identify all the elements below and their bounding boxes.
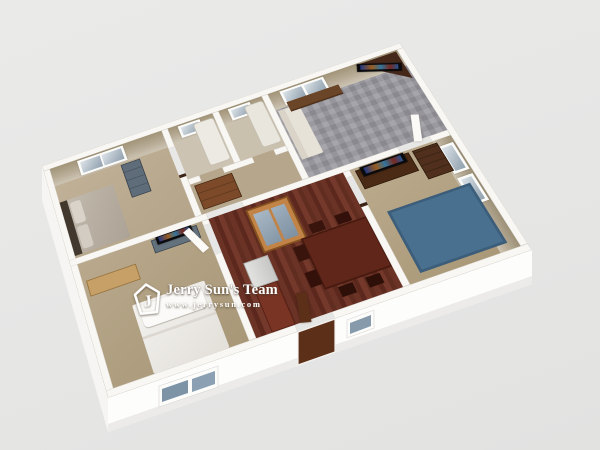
tv-living-screen: [360, 64, 399, 70]
tv-living: [357, 63, 402, 72]
wall-bedroom-bottom-divider-stub: [202, 219, 211, 226]
watermark: J Jerry Sun's Team www.jerrysun.com: [134, 283, 278, 315]
watermark-text: Jerry Sun's Team www.jerrysun.com: [166, 283, 278, 309]
watermark-pentagon-logo: J: [132, 282, 162, 317]
watermark-website: www.jerrysun.com: [166, 299, 278, 309]
floorplan-render: J Jerry Sun's Team www.jerrysun.com: [0, 0, 600, 450]
watermark-team-name: Jerry Sun's Team: [166, 283, 278, 298]
logo-letter: J: [142, 291, 153, 311]
